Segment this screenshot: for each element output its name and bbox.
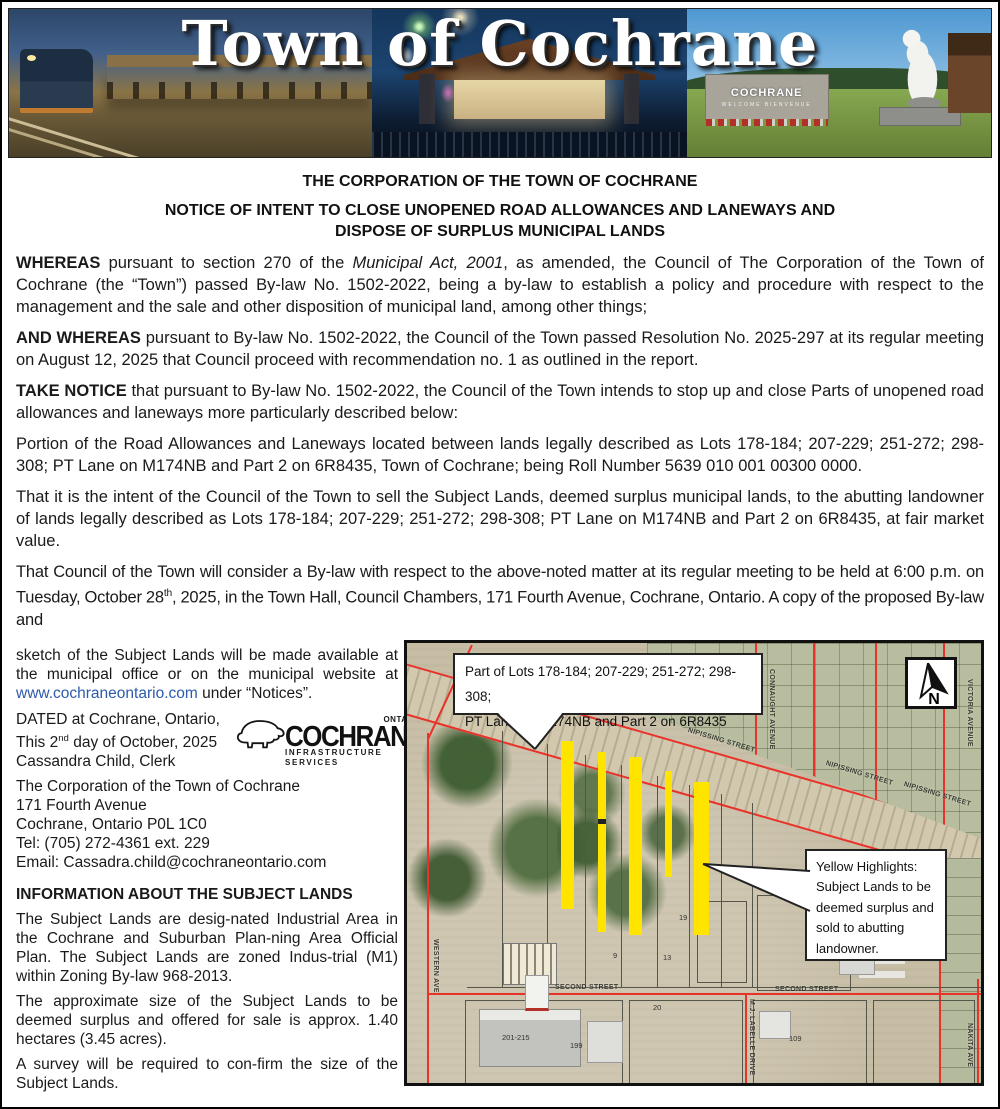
highlight-divider-tick bbox=[598, 819, 606, 824]
address-line: Cochrane, Ontario P0L 1C0 bbox=[16, 815, 398, 834]
cochrane-infrastructure-logo: ONTARIO COCHRANE INFRASTRUCTURE SERVICES bbox=[232, 713, 398, 768]
dated-line-2-post: day of October, 2025 bbox=[69, 734, 217, 751]
email-line: Email: Cassadra.child@cochraneontario.co… bbox=[16, 853, 398, 872]
address-line: The Corporation of the Town of Cochrane bbox=[16, 777, 398, 796]
availability-paragraph: sketch of the Subject Lands will be made… bbox=[16, 646, 398, 703]
intent-paragraph: That it is the intent of the Council of … bbox=[16, 486, 984, 552]
small-building-2 bbox=[759, 1011, 791, 1039]
stage-interior bbox=[454, 80, 605, 118]
parcel-label: 9 bbox=[613, 951, 617, 960]
highlights-callout-line: landowner. bbox=[816, 939, 936, 960]
and-whereas-text: pursuant to By-law No. 1502-2022, the Co… bbox=[16, 329, 984, 369]
street-label-victoria: VICTORIA AVENUE bbox=[966, 679, 973, 747]
notice-page: COCHRANE WELCOME BIENVENUE Town of Cochr… bbox=[0, 0, 1000, 1109]
notice-body: THE CORPORATION OF THE TOWN OF COCHRANE … bbox=[2, 158, 998, 1107]
dated-and-logo-row: DATED at Cochrane, Ontario, This 2nd day… bbox=[16, 710, 398, 771]
clerk-signature-line: Cassandra Child, Clerk bbox=[16, 752, 228, 771]
info-heading: INFORMATION ABOUT THE SUBJECT LANDS bbox=[16, 885, 398, 904]
highlights-callout-line: sold to abutting bbox=[816, 918, 936, 939]
welcome-sign: COCHRANE WELCOME BIENVENUE bbox=[705, 74, 829, 120]
municipal-act-citation: Municipal Act, 2001 bbox=[353, 254, 504, 272]
subject-land-highlight-4 bbox=[665, 771, 672, 877]
street-label-western: WESTERN AVE bbox=[432, 939, 439, 993]
street-label-second: SECOND STREET bbox=[775, 986, 838, 993]
take-notice-text: that pursuant to By-law No. 1502-2022, t… bbox=[16, 382, 984, 422]
notice-heading: NOTICE OF INTENT TO CLOSE UNOPENED ROAD … bbox=[16, 200, 984, 242]
yellow-highlights-callout: Yellow Highlights: Subject Lands to be d… bbox=[805, 849, 947, 961]
parcel-label: 199 bbox=[570, 1041, 583, 1050]
banner: COCHRANE WELCOME BIENVENUE Town of Cochr… bbox=[8, 8, 992, 158]
whereas-paragraph: WHEREAS pursuant to section 270 of the M… bbox=[16, 252, 984, 318]
street-label-connaught: CONNAUGHT AVENUE bbox=[768, 669, 775, 750]
phone-line: Tel: (705) 272-4361 ext. 229 bbox=[16, 834, 398, 853]
small-building bbox=[587, 1021, 623, 1063]
availability-text-post: under “Notices”. bbox=[198, 685, 313, 702]
north-label: N bbox=[928, 691, 940, 706]
left-column: sketch of the Subject Lands will be made… bbox=[16, 640, 398, 1099]
info-paragraph-zoning: The Subject Lands are desig-nated Indust… bbox=[16, 910, 398, 986]
and-whereas-label: AND WHEREAS bbox=[16, 329, 141, 347]
north-arrow: N bbox=[905, 657, 957, 709]
notice-heading-line-1: NOTICE OF INTENT TO CLOSE UNOPENED ROAD … bbox=[165, 202, 835, 219]
notice-heading-line-2: DISPOSE OF SURPLUS MUNICIPAL LANDS bbox=[335, 223, 665, 240]
whereas-text-pre: pursuant to section 270 of the bbox=[100, 254, 352, 272]
stage-light-pink bbox=[441, 83, 455, 103]
lots-callout-line-1: Part of Lots 178-184; 207-229; 251-272; … bbox=[465, 659, 751, 709]
address-line: 171 Fourth Avenue bbox=[16, 796, 398, 815]
highlights-callout-line: Yellow Highlights: bbox=[816, 857, 936, 878]
and-whereas-paragraph: AND WHEREAS pursuant to By-law No. 1502-… bbox=[16, 327, 984, 371]
ordinal-superscript: th bbox=[164, 588, 172, 599]
welcome-sign-text: COCHRANE bbox=[706, 87, 828, 99]
subject-land-highlight-3 bbox=[629, 757, 642, 935]
subject-land-highlight-5 bbox=[694, 782, 709, 935]
flower-bed bbox=[706, 119, 828, 126]
lots-callout: Part of Lots 178-184; 207-229; 251-272; … bbox=[453, 653, 763, 715]
welcome-sign-subtext: WELCOME BIENVENUE bbox=[706, 102, 828, 108]
parcel-label: 19 bbox=[679, 913, 687, 922]
crowd bbox=[372, 132, 686, 157]
street-label-second: SECOND STREET bbox=[555, 984, 618, 991]
address-block: The Corporation of the Town of Cochrane … bbox=[16, 777, 398, 872]
white-trailer bbox=[525, 975, 549, 1011]
parcel-label: 109 bbox=[789, 1034, 802, 1043]
polar-bear-logo-icon bbox=[232, 713, 292, 759]
street-label-labelle: M.J. LABELLE DRIVE bbox=[748, 999, 755, 1076]
dated-block: DATED at Cochrane, Ontario, This 2nd day… bbox=[16, 710, 228, 771]
highlights-callout-line: deemed surplus and bbox=[816, 898, 936, 919]
council-meeting-paragraph: That Council of the Town will consider a… bbox=[16, 561, 984, 631]
banner-title: Town of Cochrane bbox=[9, 8, 991, 80]
parcel-label: 20 bbox=[653, 1003, 661, 1012]
info-paragraph-survey: A survey will be required to con-firm th… bbox=[16, 1055, 398, 1093]
ordinal-superscript-nd: nd bbox=[58, 733, 69, 744]
stage-pillar-right bbox=[624, 74, 640, 124]
road-allowances-paragraph: Portion of the Road Allowances and Lanew… bbox=[16, 433, 984, 477]
info-paragraph-size: The approximate size of the Subject Land… bbox=[16, 992, 398, 1049]
subject-land-highlight-1 bbox=[561, 741, 574, 909]
take-notice-label: TAKE NOTICE bbox=[16, 382, 127, 400]
parcel-label: 201-215 bbox=[502, 1033, 530, 1042]
two-column-area: sketch of the Subject Lands will be made… bbox=[16, 640, 984, 1099]
logo-wordmark: COCHRANE bbox=[285, 722, 423, 749]
availability-text-pre: sketch of the Subject Lands will be made… bbox=[16, 647, 398, 683]
highlights-callout-line: Subject Lands to be bbox=[816, 877, 936, 898]
logo-text-block: ONTARIO COCHRANE INFRASTRUCTURE SERVICES bbox=[285, 716, 423, 768]
dated-line-2: This 2nd day of October, 2025 bbox=[16, 729, 228, 752]
subject-land-highlight-2 bbox=[598, 752, 606, 932]
parcel-label: 13 bbox=[663, 953, 671, 962]
whereas-label: WHEREAS bbox=[16, 254, 100, 272]
lots-callout-line-2: PT Lane on M174NB and Part 2 on 6R8435 bbox=[465, 709, 751, 734]
subject-lands-map: Part of Lots 178-184; 207-229; 251-272; … bbox=[404, 640, 984, 1086]
take-notice-paragraph: TAKE NOTICE that pursuant to By-law No. … bbox=[16, 380, 984, 424]
stage-pillar-left bbox=[419, 74, 435, 124]
website-link[interactable]: www.cochraneontario.com bbox=[16, 685, 198, 702]
warehouse-building bbox=[479, 1009, 581, 1067]
dated-line-1: DATED at Cochrane, Ontario, bbox=[16, 710, 228, 729]
corporation-heading: THE CORPORATION OF THE TOWN OF COCHRANE bbox=[16, 173, 984, 191]
street-label-nakita: NAKITA AVE bbox=[966, 1023, 973, 1067]
dated-line-2-pre: This 2 bbox=[16, 734, 58, 751]
